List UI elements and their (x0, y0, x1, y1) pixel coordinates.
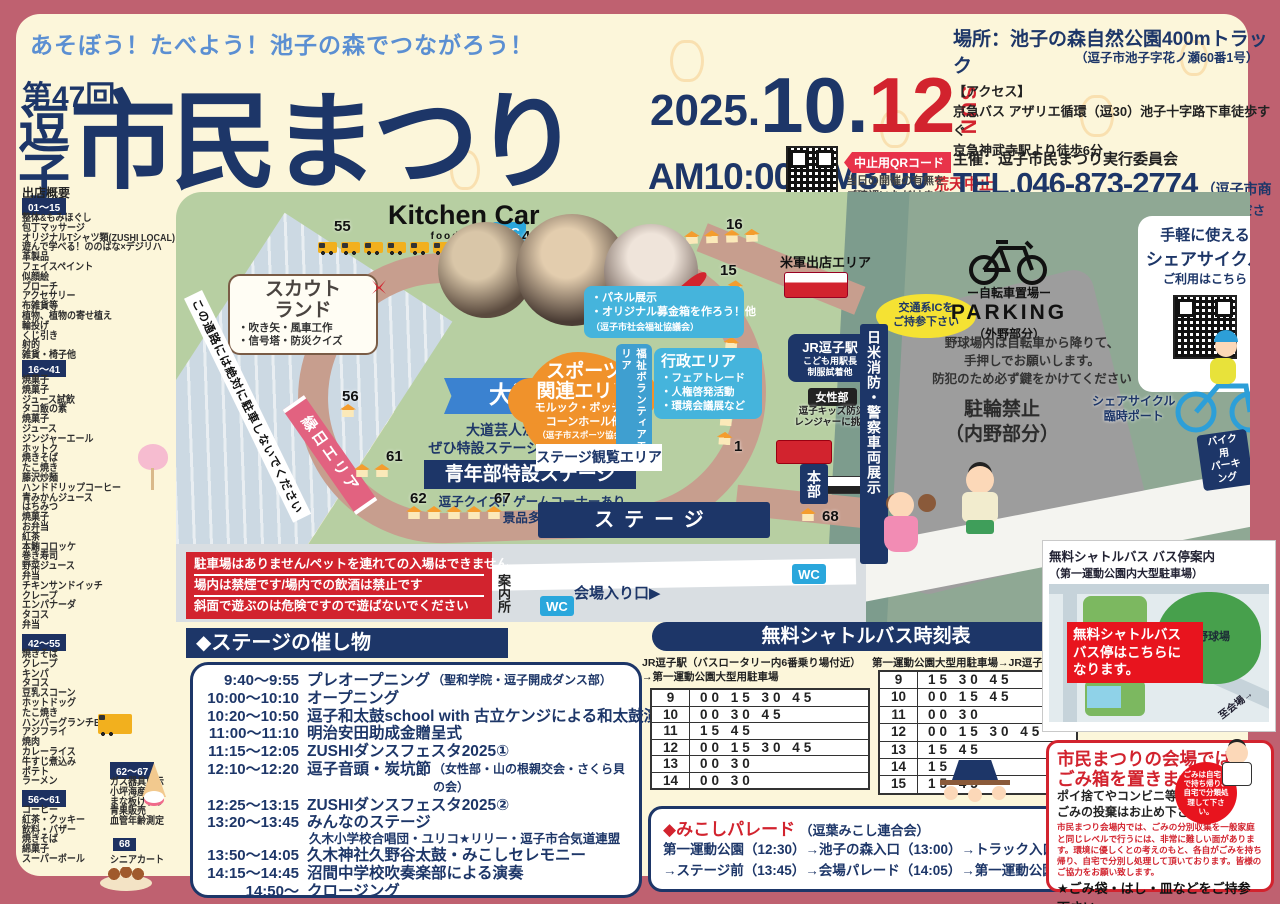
booth-group-items: シニアカート (110, 856, 170, 866)
program-row: 11:15～12:05 ZUSHIダンスフェスタ2025① (199, 743, 629, 761)
program-title: オープニング (307, 690, 399, 708)
minutes-cell: 00 15 45 (918, 689, 1013, 705)
program-title: クロージング (307, 883, 400, 901)
booth-number: 62 (410, 490, 427, 507)
minutes-cell: 00 30 (690, 773, 754, 789)
program-title: 逗子音頭・炭坑節 (307, 761, 431, 797)
timetable-row: 9 00 15 30 45 (652, 690, 868, 707)
booth-item: シニアカート (110, 856, 164, 866)
shuttle-right-caption: 第一運動公園大型用駐車場→JR逗子駅 (872, 656, 1053, 670)
minutes-cell: 15 30 45 (918, 672, 1013, 688)
booth-number: 68 (822, 508, 839, 525)
program-time: 11:00～11:10 (199, 725, 299, 743)
program-row: 14:15～14:45 沼間中学校吹奏楽部による演奏 (199, 865, 629, 883)
us-army-area-label: 米軍出店エリア (780, 252, 871, 271)
venue-address: （逗子市池子字花ノ瀬60番1号） (1075, 47, 1258, 66)
hour-cell: 11 (652, 723, 690, 739)
minutes-cell: 15 45 (918, 742, 982, 758)
tent-icon (340, 404, 356, 417)
program-row: 10:20～10:50 逗子和太鼓school with 古立ケンジによる和太鼓… (199, 708, 629, 726)
minutes-cell: 00 30 45 (690, 707, 785, 723)
booth-number: 16 (726, 216, 743, 233)
qr-label: 中止用QRコード (844, 152, 951, 173)
festival-poster: あそぼう！たべよう！池子の森でつながろう！ 第47回 逗子 市民まつり 2025… (0, 0, 1280, 904)
program-row: 9:40～9:55 プレオープニング （聖和学院・逗子開成ダンス部） (199, 672, 629, 690)
stage-label: ステージ (538, 502, 770, 538)
booth-item: スーパーボール (22, 855, 85, 865)
hour-cell: 14 (652, 773, 690, 789)
program-time: 12:10～12:20 (199, 761, 299, 797)
booth-item: 血管年齢測定 (110, 817, 164, 827)
program-row: 14:50～ クロージング (199, 883, 629, 901)
minutes-cell: 00 30 (918, 707, 982, 723)
takoyaki-illustration (100, 875, 152, 891)
program-row: 10:00～10:10 オープニング (199, 690, 629, 708)
fire-truck-icon (784, 272, 848, 298)
tent-icon (374, 464, 390, 477)
entrance-label: 会場入り口▶ (574, 582, 661, 603)
hour-cell: 11 (880, 707, 918, 723)
hour-cell: 10 (652, 707, 690, 723)
program-title: 逗子和太鼓school with 古立ケンジによる和太鼓演奏 (307, 708, 675, 726)
booth-group-items: コーヒー紅茶・クッキー飲料・バザー焼きそば綿菓子スーパーボール (22, 806, 92, 865)
tent-icon (406, 506, 422, 519)
cotton-candy-illustration (138, 444, 168, 470)
program-row: 13:20～13:45 みんなのステージ 久木小学校合唱団・ユリコ★リリー・逗子… (199, 814, 629, 847)
kitchen-car-icon (364, 242, 383, 253)
program-title: ZUSHIダンスフェスタ2025① (307, 743, 509, 761)
page-title: 逗子 市民まつり (18, 100, 575, 204)
minutes-cell: 00 15 30 45 (690, 690, 815, 706)
program-row: 12:25～13:15 ZUSHIダンスフェスタ2025② (199, 797, 629, 815)
hour-cell: 15 (880, 776, 918, 792)
program-row: 13:50～14:05 久木神社久野谷太鼓・みこしセレモニー (199, 847, 629, 865)
booth-number: 55 (334, 218, 351, 235)
program-subline: 久木小学校合唱団・ユリコ★リリー・逗子市合気道連盟 (309, 832, 629, 847)
program-time: 10:20～10:50 (199, 708, 299, 726)
kitchen-car-icon (410, 242, 429, 253)
cancel-qr-code (786, 146, 838, 198)
tent-icon (744, 229, 760, 243)
minutes-cell: 00 15 30 45 (690, 740, 815, 756)
program-title: プレオープニング (307, 672, 430, 690)
program-time: 9:40～9:55 (199, 672, 299, 690)
gov-area-box: 行政エリア ・フェアトレード ・人権啓発活動 ・環境会議展など (654, 348, 762, 419)
slogan: あそぼう！たべよう！池子の森でつながろう！ (30, 26, 534, 60)
timetable-row: 14 00 30 (652, 773, 868, 789)
program-time: 11:15～12:05 (199, 743, 299, 761)
tent-icon (426, 506, 442, 519)
tent-icon (716, 431, 733, 445)
program-row: 11:00～11:10 明治安田助成金贈呈式 (199, 725, 629, 743)
kitchen-car-row (316, 240, 454, 258)
tent-icon (800, 508, 816, 521)
booth-group-items: 整体&もみほぐし包丁マッサージオリジナルTシャツ類(ZUSHI LOCAL)遊ん… (22, 214, 192, 361)
tent-icon (486, 506, 502, 519)
info-desk-label: 案内所 (494, 574, 513, 613)
stage-viewing-area: ステージ観覧エリア (536, 444, 662, 471)
timetable-row: 10 00 30 45 (652, 707, 868, 724)
booth-range-badge: 68 (113, 838, 136, 851)
hour-cell: 12 (652, 740, 690, 756)
timetable-row: 13 00 30 (652, 756, 868, 773)
program-row: 12:10～12:20 逗子音頭・炭坑節 （女性部・山の根親交会・さくら貝の会） (199, 761, 629, 797)
program-time: 12:25～13:15 (199, 797, 299, 815)
hour-cell: 9 (880, 672, 918, 688)
shuttle-table-left: 9 00 15 30 45 10 00 30 45 11 15 45 12 00… (650, 688, 870, 790)
bike-parking-label: バイク用 パーキング (1196, 429, 1250, 491)
program-time: 14:50～ (199, 883, 299, 901)
hour-cell: 13 (880, 742, 918, 758)
hour-cell: 14 (880, 759, 918, 775)
welfare-panel-box: ・パネル展示 ・オリジナル募金箱を作ろう！他 （逗子市社会福祉協議会） (584, 286, 744, 338)
kitchen-car-icon (341, 242, 360, 253)
program-title: ZUSHIダンスフェスタ2025② (307, 797, 509, 815)
program-time: 14:15～14:45 (199, 865, 299, 883)
program-time: 10:00～10:10 (199, 690, 299, 708)
booth-number: 61 (386, 448, 403, 465)
scout-land-box: スカウトランド ・吹き矢・風車工作 ・信号塔・防災クイズ (228, 274, 378, 355)
booth-number: 15 (720, 262, 737, 279)
stage-program-box: 9:40～9:55 プレオープニング （聖和学院・逗子開成ダンス部） 10:00… (190, 662, 642, 898)
cyclist-illustration (1162, 330, 1250, 434)
no-bike-parking-label: 駐輪禁止 （内野部分） (922, 398, 1082, 447)
minutes-cell: 00 15 30 45 (918, 724, 1043, 740)
tent-icon (354, 464, 370, 477)
booth-number: 67 (494, 490, 511, 507)
wc-badge: WC (540, 596, 574, 616)
bike-rules-note: 野球場内は自転車から降りて、 手押しでお願いします。 防犯のため必ず鍵をかけてく… (920, 334, 1144, 388)
hour-cell: 12 (880, 724, 918, 740)
hour-cell: 10 (880, 689, 918, 705)
program-time: 13:20～13:45 (199, 814, 299, 832)
wc-badge: WC (792, 564, 826, 584)
headquarters-label: 本部 (800, 464, 828, 504)
booth-group-items: 焼菓子焼菓子ジュース試飲タコ飯の素焼菓子ジュースジンジャーエールホットク焼きそば… (22, 376, 132, 631)
booth-item: くじ引き (22, 332, 175, 342)
mikoshi-title: ◆みこしパレード (663, 820, 795, 839)
tent-icon-wrap (798, 508, 818, 526)
kitchen-car-icon (318, 242, 337, 253)
bus-stop-map: 無料シャトルバス バス停案内 （第一運動公園内大型駐車場） 野球場 無料シャトル… (1042, 540, 1276, 732)
program-title: 沼間中学校吹奏楽部による演奏 (307, 865, 524, 883)
timetable-row: 12 00 15 30 45 (652, 740, 868, 757)
tent-icon (704, 230, 720, 244)
booth-number: 1 (734, 438, 742, 455)
minutes-cell: 00 30 (690, 756, 754, 772)
shuttle-heading: 無料シャトルバス時刻表 (652, 622, 1080, 651)
tent-icon (446, 506, 462, 519)
booth-item: 弁当 (22, 621, 121, 631)
shuttle-left-caption: JR逗子駅（バスロータリー内6番乗り場付近） →第一運動公園大型用駐車場 (642, 656, 861, 684)
stage-program-heading: ◆ステージの催し物 (186, 628, 508, 658)
fire-engine-icon (776, 440, 832, 464)
tent-row (404, 506, 504, 524)
rules-warning-box: 駐車場はありません/ペットを連れての入場はできません 場内は禁煙です/場内での飲… (186, 552, 492, 619)
event-date: 2025. 10. 12 SUN (650, 74, 978, 136)
bicycle-icon (966, 230, 1052, 286)
booth-item: ラーメン (22, 777, 114, 787)
program-title: みんなのステージ (307, 814, 431, 832)
title-main: 市民まつり (70, 100, 575, 187)
program-note: （女性部・山の根親交会・さくら貝の会） (433, 761, 629, 797)
minutes-cell: 15 45 (690, 723, 754, 739)
program-title: 久木神社久野谷太鼓・みこしセレモニー (307, 847, 586, 865)
crepe-illustration (142, 763, 166, 797)
bus-stop-callout: 無料シャトルバス バス停はこちらに なります。 (1067, 622, 1203, 683)
mikoshi-org: （逗葉みこし連合会） (800, 823, 930, 838)
tent-row (352, 464, 392, 482)
tent-icon (466, 506, 482, 519)
tent-icon-wrap (338, 404, 358, 422)
program-note: （聖和学院・逗子開成ダンス部） (432, 672, 612, 690)
program-title: 明治安田助成金贈呈式 (307, 725, 462, 743)
program-time: 13:50～14:05 (199, 847, 299, 865)
kitchen-car-icon (387, 242, 406, 253)
timetable-row: 11 15 45 (652, 723, 868, 740)
hour-cell: 9 (652, 690, 690, 706)
hour-cell: 13 (652, 756, 690, 772)
kitchen-car-icon (98, 714, 132, 734)
booth-number: 56 (342, 388, 359, 405)
bus-stop-map-area: 野球場 無料シャトルバス バス停はこちらに なります。 至会場→ (1049, 584, 1269, 722)
